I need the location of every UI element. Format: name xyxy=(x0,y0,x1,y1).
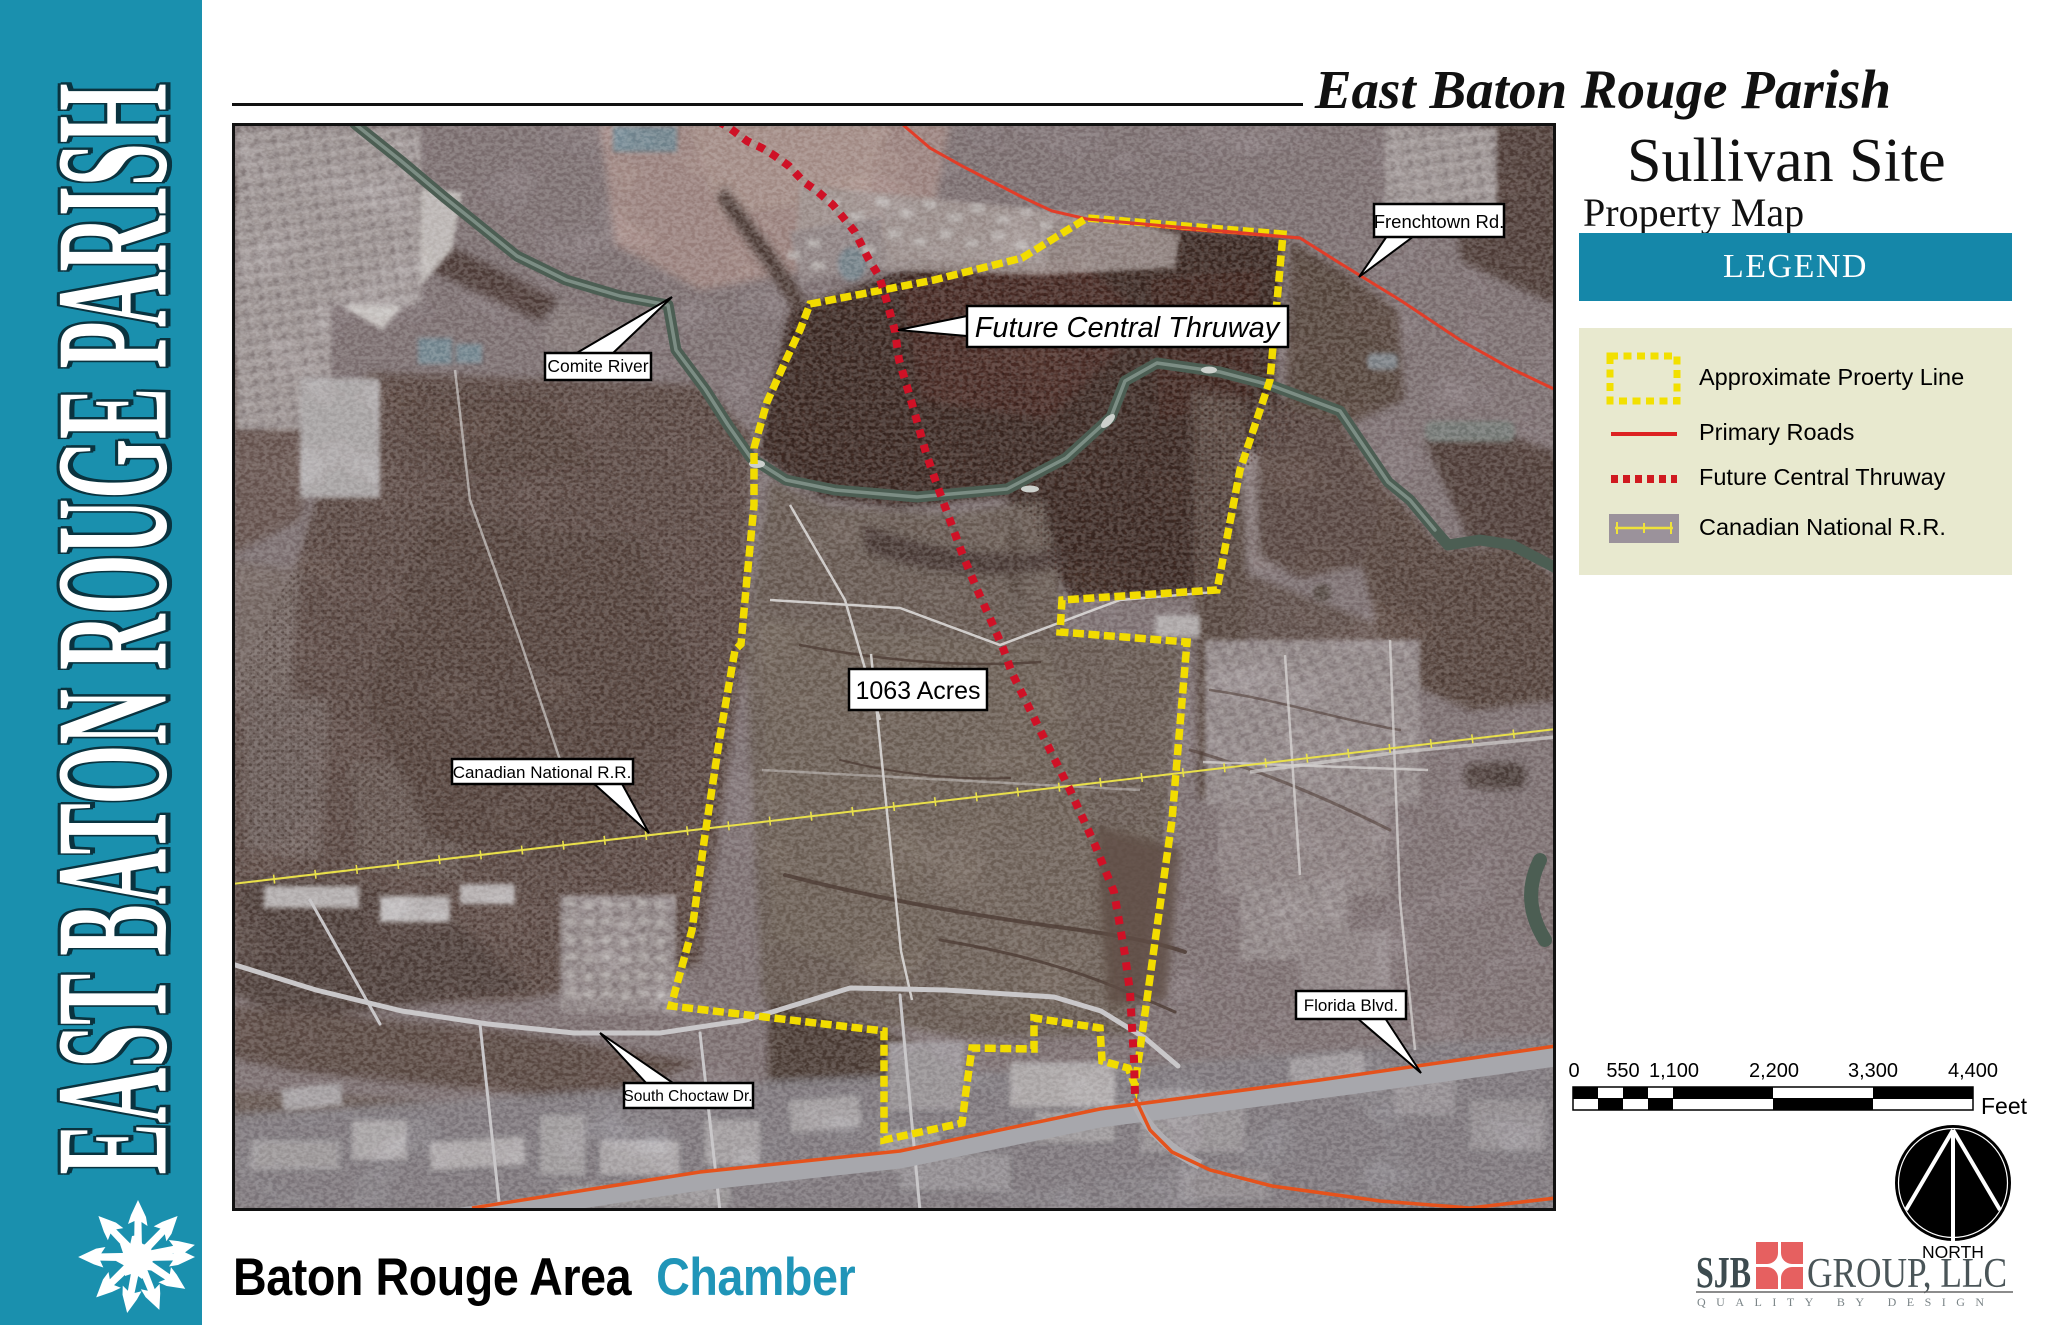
svg-text:Frenchtown Rd.: Frenchtown Rd. xyxy=(1374,211,1505,232)
svg-text:QUALITY BY DESIGN: QUALITY BY DESIGN xyxy=(1697,1295,1995,1308)
svg-text:2,200: 2,200 xyxy=(1749,1060,1799,1082)
svg-text:1063 Acres: 1063 Acres xyxy=(855,677,980,705)
svg-text:0: 0 xyxy=(1568,1060,1579,1082)
svg-text:4,400: 4,400 xyxy=(1948,1060,1998,1082)
svg-text:South Choctaw Dr.: South Choctaw Dr. xyxy=(623,1088,752,1105)
svg-text:1,100: 1,100 xyxy=(1649,1060,1699,1082)
svg-text:3,300: 3,300 xyxy=(1848,1060,1898,1082)
svg-text:Comite River: Comite River xyxy=(547,356,648,376)
svg-text:550: 550 xyxy=(1606,1060,1639,1082)
svg-text:GROUP, LLC: GROUP, LLC xyxy=(1807,1251,2007,1297)
svg-text:Canadian National R.R.: Canadian National R.R. xyxy=(453,763,632,782)
svg-text:Feet: Feet xyxy=(1981,1093,2028,1119)
svg-text:Future Central Thruway: Future Central Thruway xyxy=(975,312,1281,344)
svg-text:SJB: SJB xyxy=(1696,1248,1751,1297)
svg-text:Florida Blvd.: Florida Blvd. xyxy=(1304,996,1398,1015)
